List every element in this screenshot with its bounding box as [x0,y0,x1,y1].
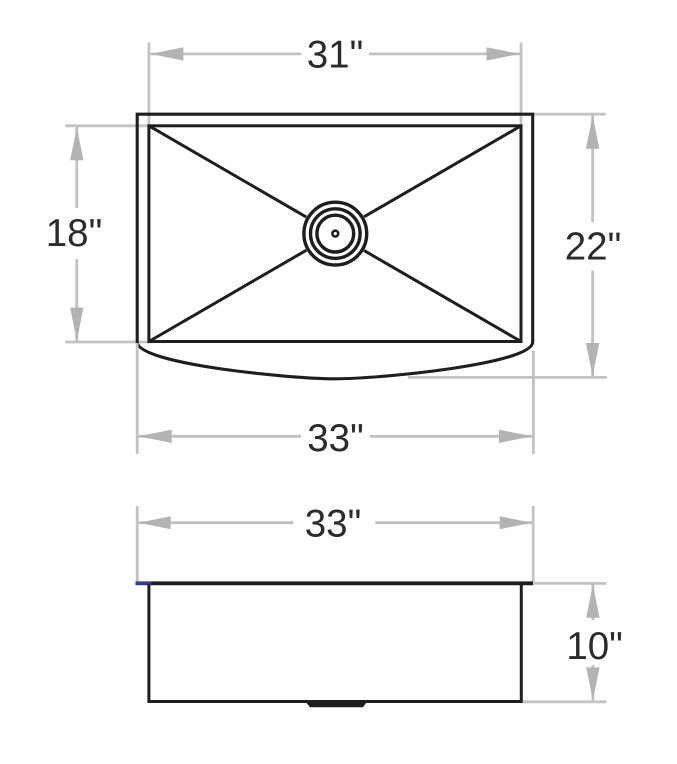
svg-text:33": 33" [307,417,364,460]
svg-text:18": 18" [46,212,103,255]
svg-text:10": 10" [566,625,623,668]
svg-text:33": 33" [305,502,362,545]
svg-text:22": 22" [565,226,622,269]
svg-text:31": 31" [307,34,364,77]
